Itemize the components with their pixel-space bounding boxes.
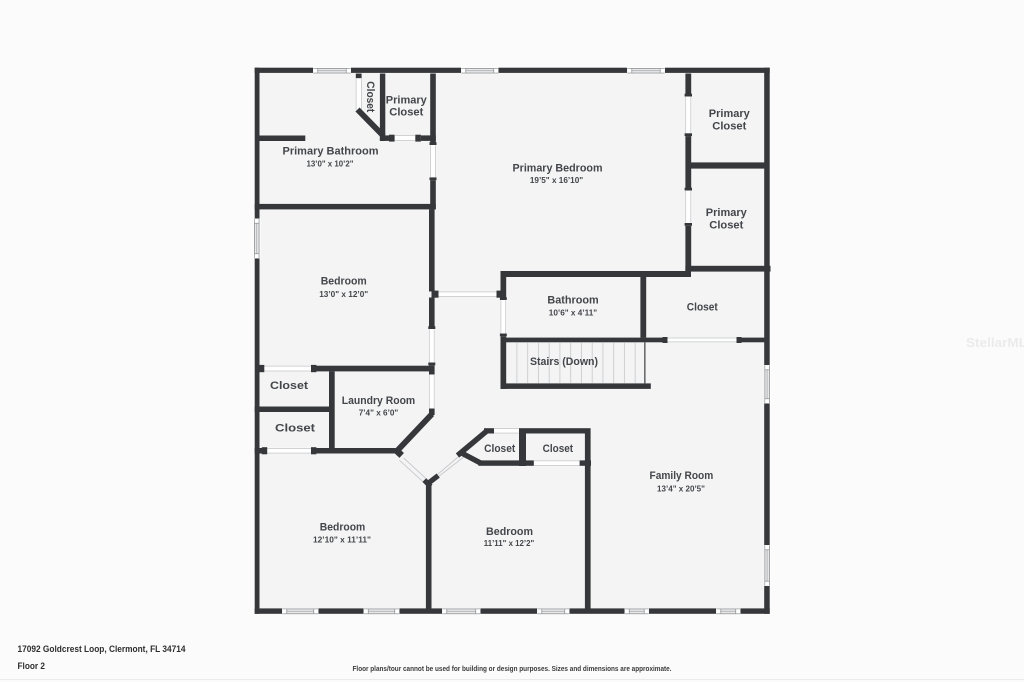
svg-text:Closet: Closet — [270, 380, 308, 392]
svg-text:Family Room: Family Room — [650, 470, 714, 482]
svg-text:Bedroom: Bedroom — [321, 276, 367, 288]
svg-text:Closet: Closet — [275, 423, 315, 435]
svg-text:Bedroom: Bedroom — [486, 526, 533, 538]
svg-text:Closet: Closet — [712, 120, 746, 132]
svg-text:Floor 2: Floor 2 — [18, 661, 46, 672]
svg-text:10’6" x 4’11": 10’6" x 4’11" — [549, 307, 597, 317]
svg-text:Floor plans/tour cannot be use: Floor plans/tour cannot be used for buil… — [353, 666, 672, 673]
svg-text:13’0" x 12’0": 13’0" x 12’0" — [319, 289, 368, 299]
svg-text:12’10" x 11’11": 12’10" x 11’11" — [313, 534, 371, 544]
svg-text:StellarMLS: StellarMLS — [966, 335, 1024, 350]
svg-text:Bedroom: Bedroom — [320, 521, 366, 533]
svg-text:Primary: Primary — [709, 108, 751, 120]
svg-text:Primary Bedroom: Primary Bedroom — [513, 162, 603, 174]
svg-text:Stairs (Down): Stairs (Down) — [530, 356, 598, 368]
svg-text:Closet: Closet — [687, 301, 718, 313]
svg-text:Closet: Closet — [364, 81, 376, 112]
svg-text:7’4" x 6’0": 7’4" x 6’0" — [359, 408, 399, 418]
svg-text:Primary: Primary — [386, 95, 428, 107]
svg-text:Closet: Closet — [543, 443, 574, 455]
svg-text:13’4" x 20’5": 13’4" x 20’5" — [657, 484, 705, 494]
svg-text:Bathroom: Bathroom — [547, 294, 599, 306]
svg-text:11’11" x 12’2": 11’11" x 12’2" — [484, 538, 535, 548]
svg-text:Closet: Closet — [389, 107, 423, 119]
svg-text:Closet: Closet — [709, 220, 743, 232]
svg-text:Primary: Primary — [706, 207, 748, 219]
svg-text:19’5" x 16’10": 19’5" x 16’10" — [530, 175, 583, 185]
svg-text:13’0" x 10’2": 13’0" x 10’2" — [307, 158, 354, 168]
svg-text:Closet: Closet — [484, 443, 515, 455]
svg-text:Primary Bathroom: Primary Bathroom — [283, 146, 379, 158]
svg-text:17092 Goldcrest Loop, Clermont: 17092 Goldcrest Loop, Clermont, FL 34714 — [18, 644, 187, 655]
svg-text:Laundry Room: Laundry Room — [342, 395, 416, 407]
